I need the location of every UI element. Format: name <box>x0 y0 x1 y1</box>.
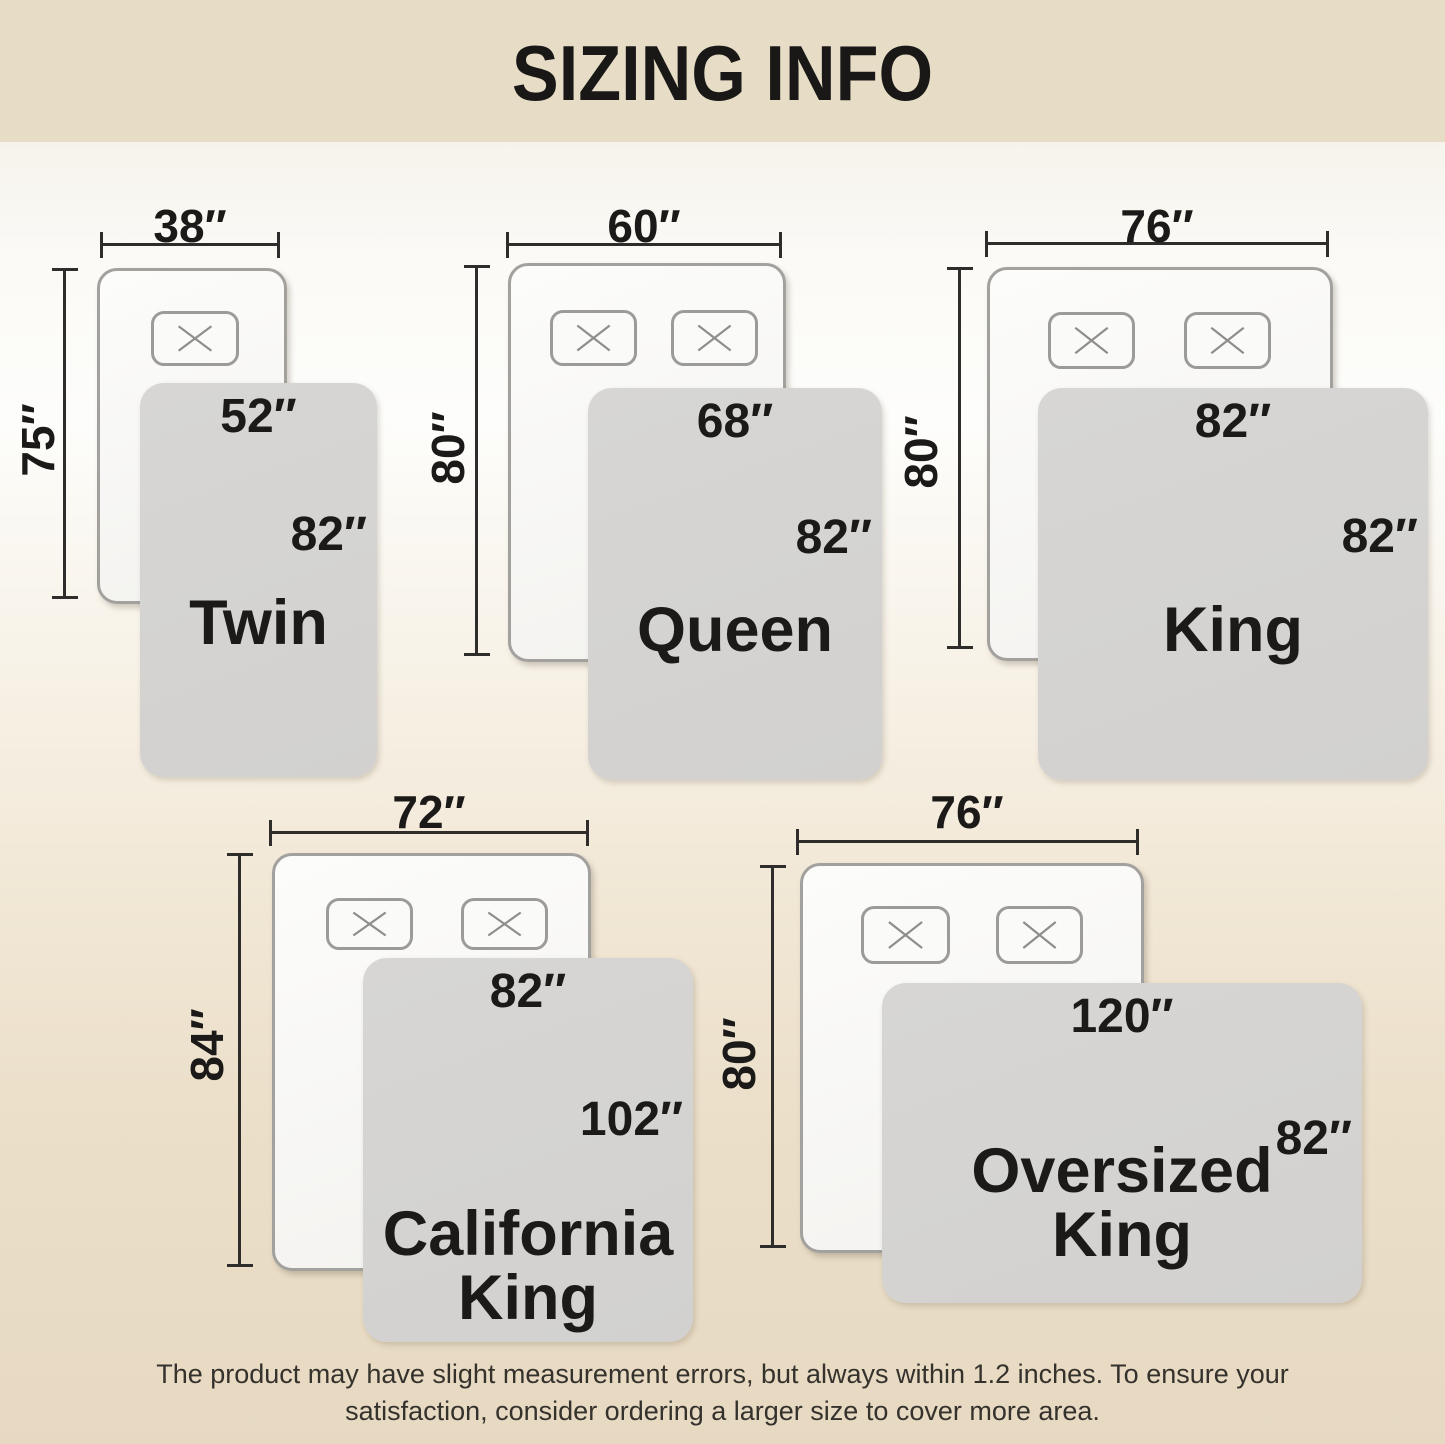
width-dimension-label: 60″ <box>607 199 680 253</box>
blanket-width-label: 52″ <box>220 389 296 444</box>
footer-line-2: satisfaction, consider ordering a larger… <box>0 1393 1445 1430</box>
length-dimension-label: 80″ <box>421 411 475 484</box>
x-icon <box>464 901 545 947</box>
length-dimension-line <box>958 268 961 648</box>
pillow-icon <box>461 898 548 950</box>
bed-name: King <box>1038 598 1428 662</box>
blanket: 68″ 82″ Queen <box>588 388 882 780</box>
x-icon <box>864 909 947 961</box>
x-icon <box>1187 315 1268 366</box>
blanket-length-label: 102″ <box>580 1092 683 1147</box>
footer-note: The product may have slight measurement … <box>0 1356 1445 1430</box>
blanket: 52″ 82″ Twin <box>140 383 377 777</box>
page-title: SIZING INFO <box>72 0 1373 142</box>
blanket-length-label: 82″ <box>796 510 872 565</box>
blanket-width-label: 120″ <box>1070 989 1173 1044</box>
x-icon <box>1051 315 1132 366</box>
bed-name: Queen <box>588 598 882 662</box>
length-dimension-line <box>238 854 241 1266</box>
width-dimension-label: 76″ <box>1120 199 1193 253</box>
width-dimension-label: 76″ <box>930 785 1003 839</box>
blanket: 120″ 82″ OversizedKing <box>882 983 1362 1303</box>
sizing-infographic: SIZING INFO 38″ 75″ 52″ 82″ Twin 60″ 80″ <box>0 0 1445 1444</box>
bed-name: CaliforniaKing <box>363 1202 693 1330</box>
width-dimension-label: 72″ <box>392 785 465 839</box>
pillow-icon <box>1048 312 1135 369</box>
blanket-length-label: 82″ <box>1342 509 1418 564</box>
blanket: 82″ 102″ CaliforniaKing <box>363 958 693 1342</box>
blanket-width-label: 82″ <box>490 964 566 1019</box>
length-dimension-label: 80″ <box>712 1017 766 1090</box>
width-dimension-line <box>797 840 1138 843</box>
length-dimension-line <box>475 266 478 655</box>
x-icon <box>999 909 1080 961</box>
width-dimension-label: 38″ <box>153 199 226 253</box>
pillow-icon <box>550 310 637 366</box>
blanket: 82″ 82″ King <box>1038 388 1428 780</box>
bed-name: OversizedKing <box>882 1139 1362 1267</box>
pillow-icon <box>671 310 758 366</box>
pillow-icon <box>861 906 950 964</box>
blanket-width-label: 82″ <box>1195 394 1271 449</box>
x-icon <box>329 901 410 947</box>
bed-name: Twin <box>140 591 377 655</box>
length-dimension-label: 80″ <box>894 415 948 488</box>
pillow-icon <box>1184 312 1271 369</box>
pillow-icon <box>151 311 239 366</box>
blanket-width-label: 68″ <box>697 394 773 449</box>
length-dimension-label: 75″ <box>11 403 65 476</box>
length-dimension-line <box>771 866 774 1247</box>
x-icon <box>154 314 236 363</box>
header: SIZING INFO <box>0 0 1445 142</box>
pillow-icon <box>996 906 1083 964</box>
footer-line-1: The product may have slight measurement … <box>0 1356 1445 1393</box>
x-icon <box>553 313 634 363</box>
length-dimension-label: 84″ <box>180 1008 234 1081</box>
blanket-length-label: 82″ <box>291 507 367 562</box>
x-icon <box>674 313 755 363</box>
pillow-icon <box>326 898 413 950</box>
